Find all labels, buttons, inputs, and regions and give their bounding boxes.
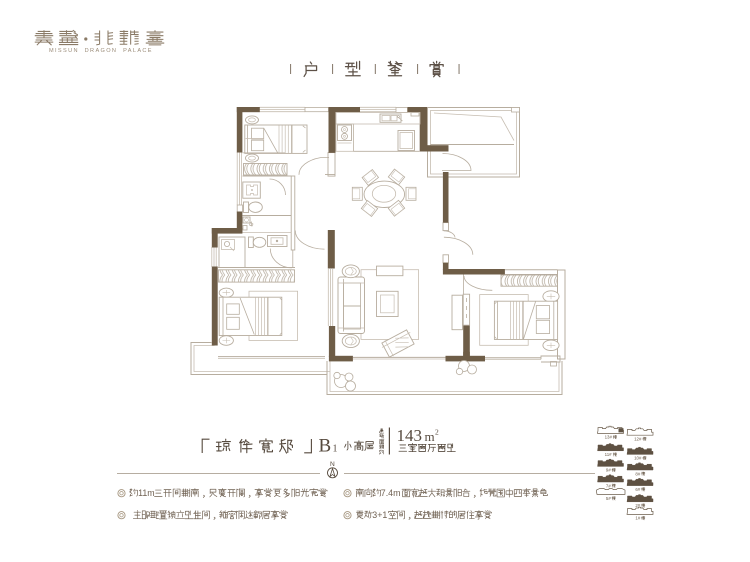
- svg-text:2: 2: [435, 428, 439, 437]
- svg-text:6#: 6#: [635, 487, 640, 492]
- svg-text:3+1: 3+1: [372, 510, 387, 520]
- svg-text:5#: 5#: [606, 496, 611, 501]
- svg-text:13#: 13#: [605, 435, 613, 440]
- svg-text:9#: 9#: [606, 468, 611, 473]
- svg-text:12#: 12#: [634, 437, 642, 442]
- svg-text:m: m: [425, 429, 435, 444]
- svg-text:7#: 7#: [606, 483, 611, 488]
- svg-text:B: B: [319, 436, 332, 457]
- svg-text:MISSUN DRAGON PALACE: MISSUN DRAGON PALACE: [49, 48, 153, 54]
- svg-text:1#: 1#: [635, 516, 640, 521]
- svg-text:N: N: [330, 461, 335, 468]
- svg-text:8#: 8#: [635, 471, 640, 476]
- svg-text:1: 1: [333, 444, 338, 455]
- svg-text:11m: 11m: [138, 488, 155, 498]
- svg-text:7.4m: 7.4m: [381, 488, 401, 498]
- svg-text:143: 143: [397, 426, 423, 445]
- svg-text:10#: 10#: [634, 456, 642, 461]
- svg-text:11#: 11#: [605, 452, 613, 457]
